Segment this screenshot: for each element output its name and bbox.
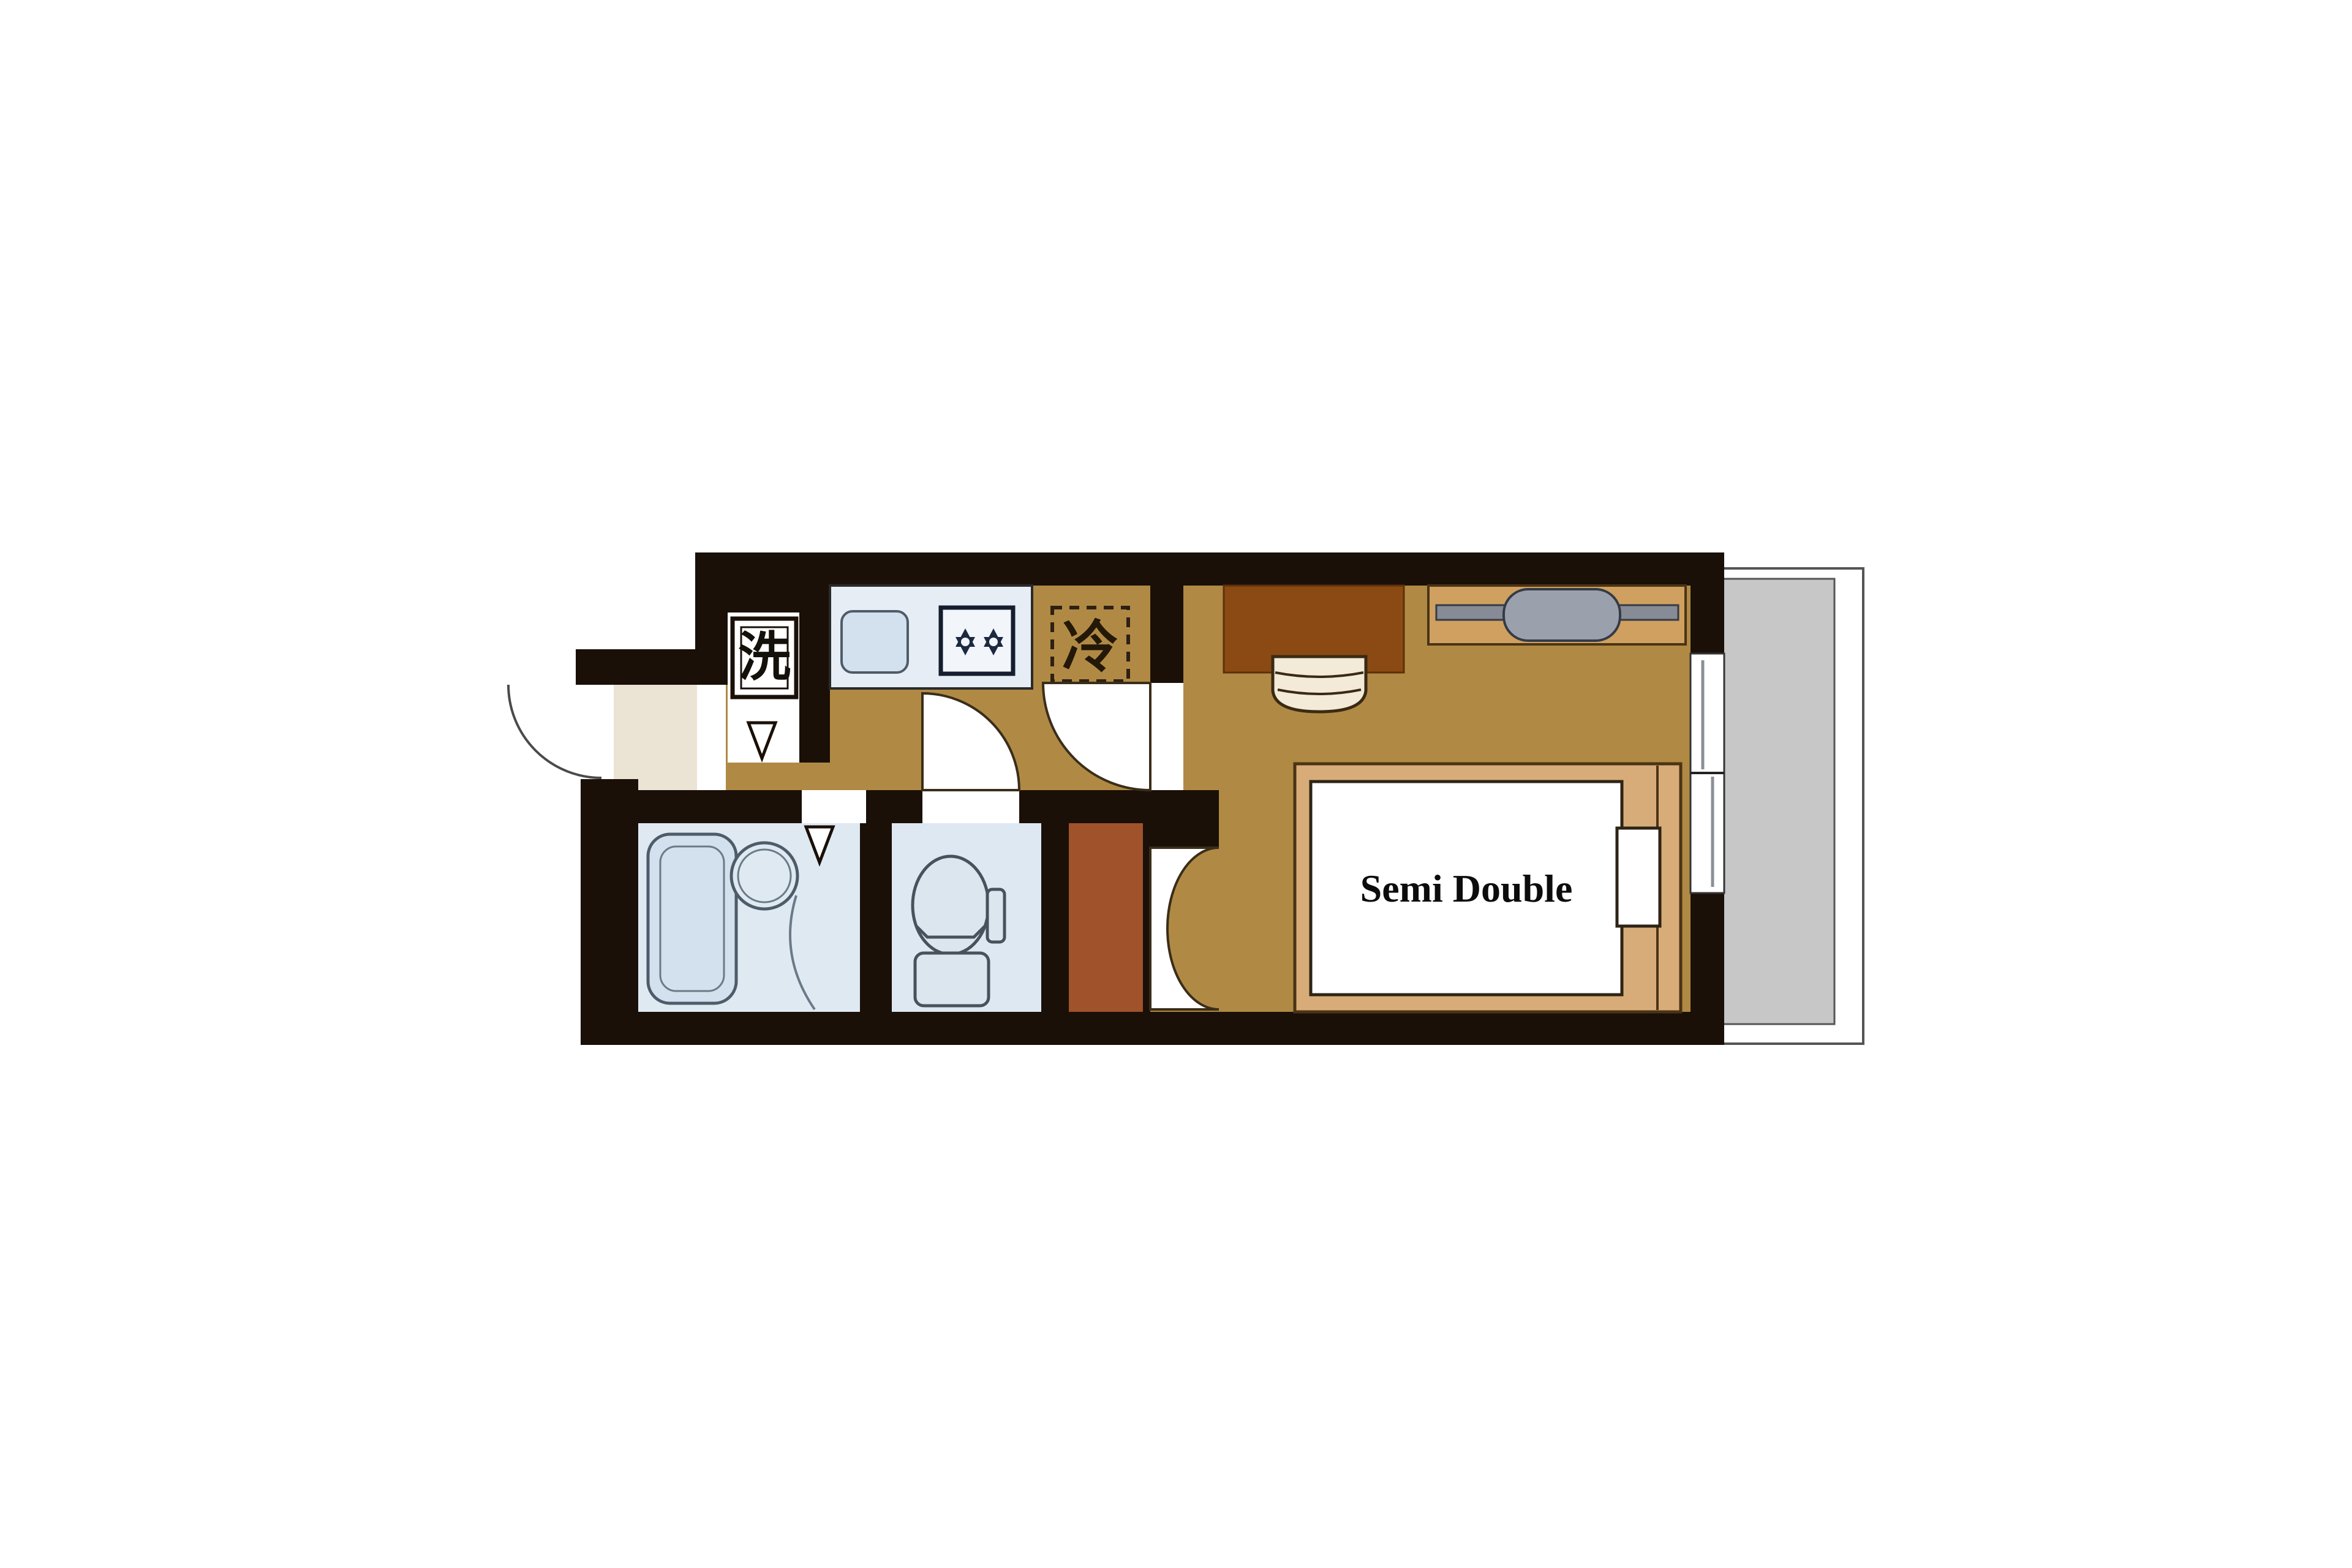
hanger-garment-oval	[1504, 589, 1620, 641]
chair-seat	[1273, 657, 1366, 712]
fridge-label: 冷	[1062, 614, 1118, 680]
hanger-rack	[1428, 586, 1686, 644]
genkan-threshold	[697, 685, 726, 790]
sliding-window	[1691, 654, 1724, 893]
main-room-door-opening	[1150, 683, 1183, 790]
wall-top	[695, 552, 1724, 586]
kitchen-counter	[830, 586, 1032, 688]
floor-plan: 洗 冷	[0, 0, 2352, 1568]
bathroom-door-opening	[802, 790, 866, 823]
toilet-bowl	[913, 856, 989, 954]
semi-double-bed: Semi Double	[1295, 764, 1681, 1012]
chair	[1273, 657, 1366, 712]
toilet-tank	[915, 953, 989, 1006]
wall-hall-bath	[614, 790, 1150, 823]
wall-right-upper	[1691, 552, 1724, 654]
wall-hall-mainroom-upper	[1150, 586, 1183, 683]
two-burner-stove	[941, 608, 1013, 674]
burner-1-center	[961, 638, 970, 646]
wall-bath-toilet	[860, 823, 892, 1012]
genkan-floor	[614, 685, 697, 790]
burner-2-center	[989, 638, 998, 646]
wash-basin	[731, 843, 797, 909]
wall-toilet-closet	[1041, 823, 1069, 1012]
wall-left-top	[581, 649, 614, 685]
pillow	[1617, 828, 1660, 926]
kitchen-sink	[842, 611, 908, 673]
wall-bottom	[581, 1012, 1724, 1045]
floor-plan-page: 洗 冷	[0, 0, 2352, 1568]
refrigerator-space: 冷	[1052, 608, 1128, 681]
entrance-opening	[581, 685, 614, 779]
balcony-deck	[1722, 579, 1834, 1024]
toilet-flush-handle	[987, 889, 1005, 942]
wall-hall-mainroom-lower	[1150, 790, 1219, 848]
toilet-door-opening	[922, 790, 1019, 823]
bed-size-label: Semi Double	[1360, 867, 1573, 910]
washer-label: 洗	[738, 627, 791, 688]
balcony	[1709, 568, 1863, 1044]
